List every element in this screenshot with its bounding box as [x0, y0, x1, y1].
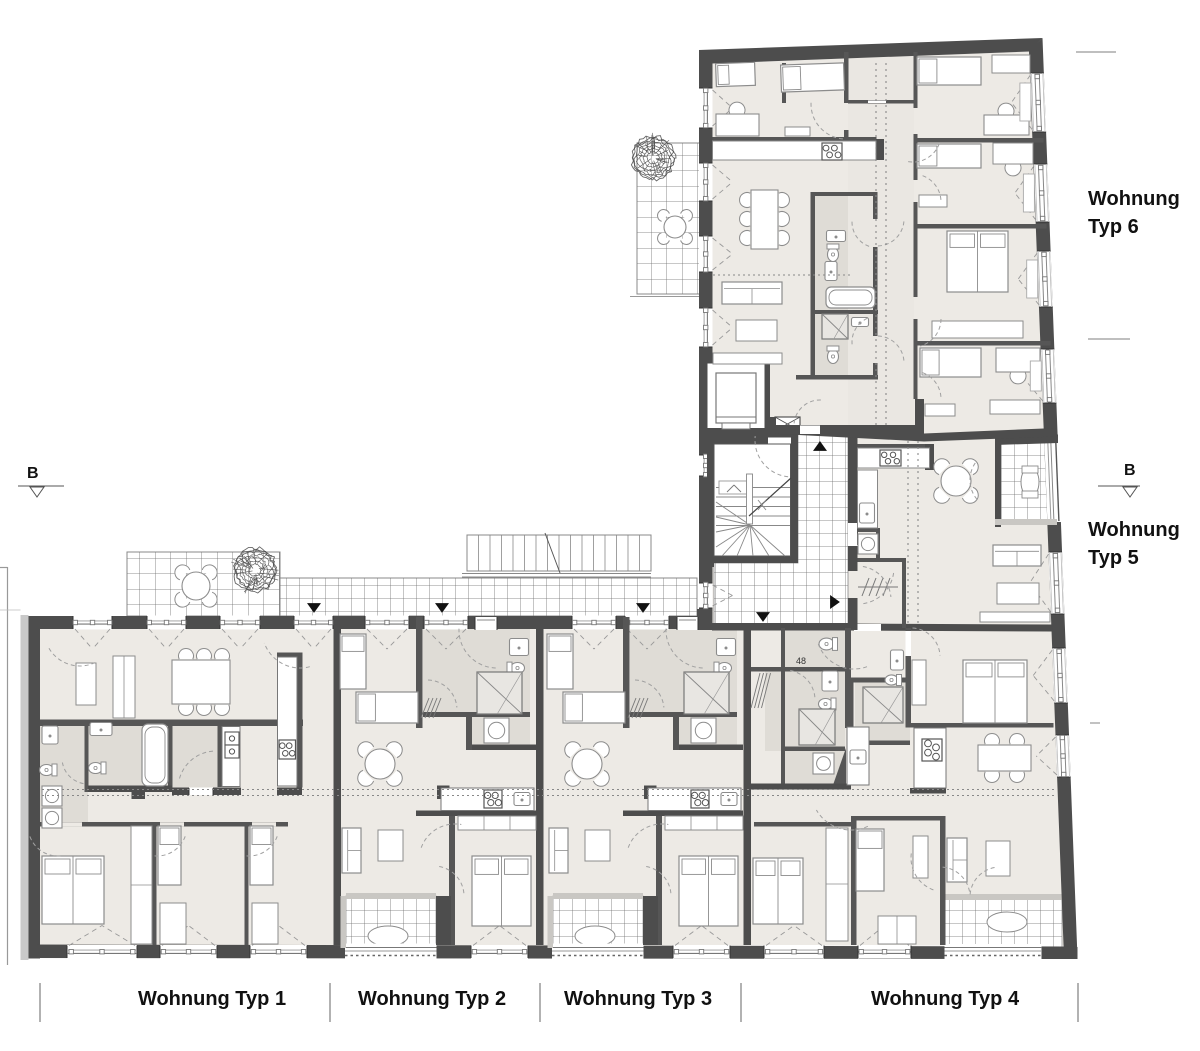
svg-text:Wohnung Typ 3: Wohnung Typ 3: [564, 988, 712, 1010]
svg-text:Wohnung Typ 2: Wohnung Typ 2: [358, 988, 506, 1010]
svg-text:Typ 6: Typ 6: [1088, 216, 1139, 238]
svg-text:Wohnung Typ 1: Wohnung Typ 1: [138, 988, 286, 1010]
svg-text:Wohnung: Wohnung: [1088, 519, 1180, 541]
svg-text:Wohnung Typ 4: Wohnung Typ 4: [871, 988, 1020, 1010]
svg-text:Wohnung: Wohnung: [1088, 188, 1180, 210]
svg-text:48: 48: [796, 656, 806, 666]
svg-text:Typ 5: Typ 5: [1088, 547, 1139, 569]
svg-text:B: B: [1124, 462, 1136, 479]
svg-text:B: B: [27, 465, 39, 482]
